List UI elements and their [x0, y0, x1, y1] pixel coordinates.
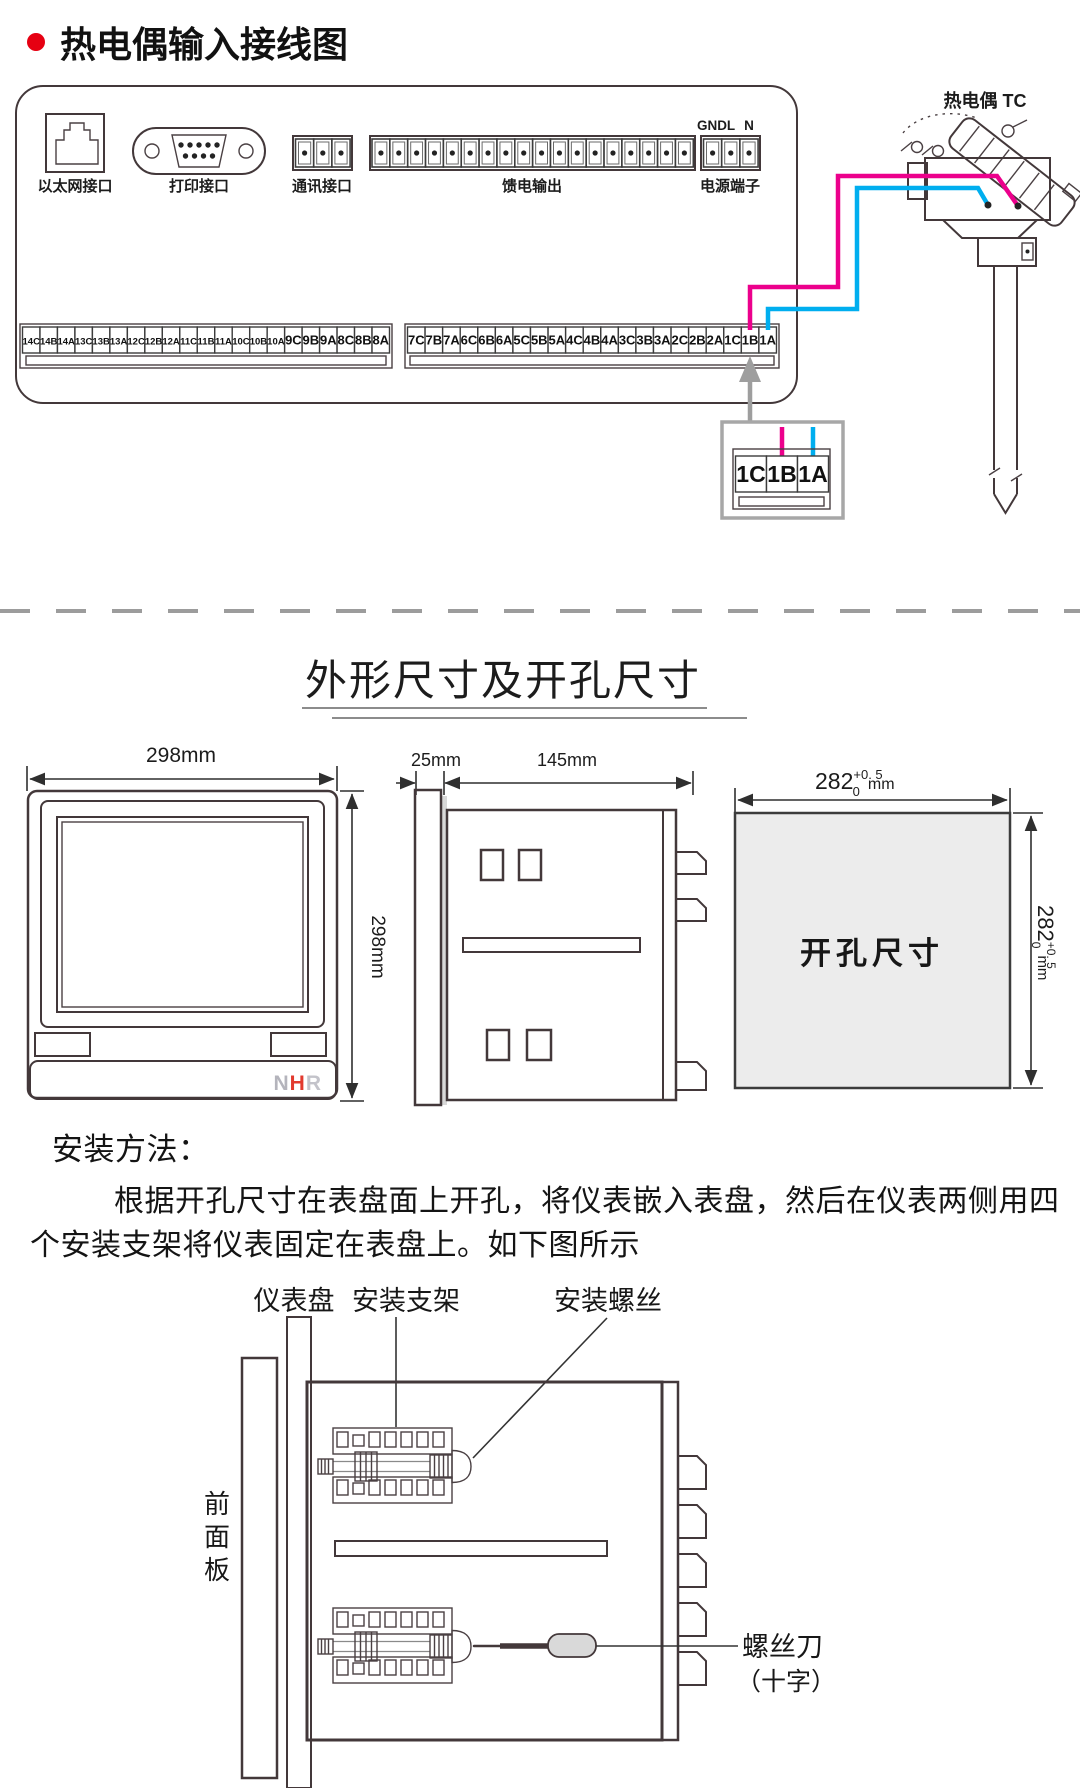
terminal-label: 9B — [303, 333, 320, 348]
dotted-cable-arc — [903, 114, 977, 133]
connector-pin-dot — [302, 150, 307, 155]
connector-pin-dot — [610, 150, 615, 155]
connector-pin-dot — [646, 150, 651, 155]
terminal-label: 3B — [636, 333, 653, 348]
terminal-label: 13A — [110, 337, 128, 348]
connector-pin-dot — [450, 150, 455, 155]
front-panel-outline — [242, 1358, 277, 1778]
feed-output-cells — [372, 139, 693, 167]
body-depth-dim: 145mm — [537, 750, 597, 770]
bullet-icon — [26, 32, 46, 52]
connector-pin-dot — [664, 150, 669, 155]
front-height-dim: 298mm — [367, 915, 388, 978]
terminal-label: 7A — [443, 333, 460, 348]
side-clip-1 — [676, 852, 706, 874]
front-width-dim: 298mm — [146, 744, 216, 767]
svg-text:板: 板 — [204, 1556, 230, 1585]
power-pin-l: L — [727, 118, 735, 133]
body-slot — [335, 1541, 607, 1556]
side-view: 25mm 145mm — [396, 750, 706, 1105]
terminal-label: 2B — [689, 333, 706, 348]
terminal-label: 12C — [127, 337, 145, 348]
terminal-label: 14A — [57, 337, 75, 348]
terminal-label: 10A — [267, 337, 285, 348]
mounting-bracket-bottom — [318, 1608, 471, 1683]
cutout-view: 282+0. 50mm 开孔尺寸 282+0. 50mm — [735, 767, 1058, 1088]
terminal-label: 11A — [215, 337, 232, 348]
terminal-label: 7B — [426, 333, 443, 348]
terminal-label: 1C — [724, 333, 741, 348]
connector-pin-dot — [396, 150, 401, 155]
terminal-label: 2A — [707, 333, 724, 348]
terminal-label: 11B — [198, 337, 215, 348]
installation-diagram: 仪表盘 安装支架 安装螺丝 前 面 板 螺丝刀 （十字） — [0, 1270, 1080, 1788]
terminal-label: 4B — [584, 333, 601, 348]
power-pin-gnd: GND — [697, 118, 727, 133]
bracket-label: 安装支架 — [352, 1286, 460, 1316]
svg-text:面: 面 — [204, 1523, 230, 1552]
connector-pin-dot — [378, 150, 383, 155]
terminal-label: 1C — [736, 461, 765, 487]
screw-label: 安装螺丝 — [554, 1286, 662, 1316]
rear-clip-2 — [678, 1505, 706, 1538]
rear-clip-3 — [678, 1554, 706, 1587]
terminal-label: 10B — [250, 337, 268, 348]
connector-pin-dot — [503, 150, 508, 155]
front-panel-label: 前 面 板 — [204, 1490, 230, 1585]
terminal-label: 9A — [320, 333, 337, 348]
connector-pin-dot — [557, 150, 562, 155]
section-title: 外形尺寸及开孔尺寸 — [305, 657, 701, 704]
connector-pin-dot — [414, 150, 419, 155]
screwdriver-sublabel: （十字） — [736, 1668, 836, 1696]
terminal-label: 7C — [408, 333, 425, 348]
terminal-label: 5B — [531, 333, 548, 348]
terminal-label: 9C — [285, 333, 302, 348]
rear-clip-5 — [678, 1652, 706, 1685]
ethernet-port-label: 以太网接口 — [37, 177, 112, 195]
install-paragraph-line1: 根据开孔尺寸在表盘面上开孔，将仪表嵌入表盘，然后在仪表两侧用四 — [114, 1176, 1060, 1220]
terminal-label: 8A — [372, 333, 389, 348]
section-divider — [0, 609, 1080, 613]
terminal-strip-left: 14C14B14A13C13B13A12C12B12A11C11B11A10C1… — [20, 324, 392, 368]
terminal-label: 6A — [496, 333, 513, 348]
terminal-zoom-arrow — [739, 356, 761, 424]
terminal-label: 12A — [162, 337, 180, 348]
terminal-strip-right: 7C7B7A6C6B6A5C5B5A4C4B4A3C3B3A2C2B2A1C1B… — [405, 324, 779, 368]
mounting-bracket-top — [318, 1428, 471, 1503]
connector-pin-dot — [728, 150, 733, 155]
thermocouple-label: 热电偶 TC — [944, 90, 1027, 111]
feed-output-label: 馈电输出 — [501, 177, 562, 195]
cutout-width-dim: 282+0. 50mm — [815, 767, 895, 799]
screwdriver-label: 螺丝刀 — [742, 1632, 823, 1662]
terminal-label: 14C — [23, 337, 41, 348]
connector-pin-dot — [539, 150, 544, 155]
terminal-label: 13C — [75, 337, 93, 348]
terminal-label: 1B — [767, 461, 796, 487]
power-pin-n: N — [744, 118, 754, 133]
tc-negative-wire — [768, 188, 988, 330]
terminal-label: 5C — [513, 333, 530, 348]
screwdriver-icon — [474, 1634, 596, 1657]
svg-text:前: 前 — [204, 1490, 230, 1519]
connector-pin-dot — [432, 150, 437, 155]
printer-port-icon — [133, 128, 265, 174]
terminal-label: 3C — [619, 333, 636, 348]
terminal-label: 13B — [92, 337, 110, 348]
printer-port-label: 打印接口 — [169, 177, 229, 195]
connector-pin-dot — [746, 150, 751, 155]
connector-pin-dot — [468, 150, 473, 155]
connector-pin-dot — [710, 150, 715, 155]
connector-pin-dot — [593, 150, 598, 155]
terminal-label: 1A — [798, 461, 827, 487]
cutout-area-label: 开孔尺寸 — [800, 936, 944, 971]
install-paragraph-line2: 个安装支架将仪表固定在表盘上。如下图所示 — [30, 1220, 640, 1264]
connector-pin-dot — [485, 150, 490, 155]
front-view: 298mm NHR 298mm — [27, 744, 388, 1101]
terminal-label: 6B — [478, 333, 495, 348]
wiring-diagram: 以太网接口 打印接口 通讯接口 馈电输出 GND L N 电源端子 14C14B… — [0, 60, 1080, 620]
screw-leader-line — [473, 1318, 607, 1458]
rear-clip-4 — [678, 1603, 706, 1636]
terminal-label: 3A — [654, 333, 671, 348]
bezel-depth-dim: 25mm — [411, 750, 461, 770]
connector-pin-dot — [338, 150, 343, 155]
terminal-label: 1B — [742, 333, 759, 348]
ethernet-port-icon — [46, 114, 104, 172]
connector-pin-dot — [575, 150, 580, 155]
brand-logo: NHR — [273, 1072, 322, 1095]
svg-text:282+0. 50mm: 282+0. 50mm — [1029, 905, 1058, 980]
meter-body — [307, 1382, 706, 1740]
connector-pin-dot — [628, 150, 633, 155]
terminal-label: 4C — [566, 333, 583, 348]
terminal-label: 5A — [549, 333, 566, 348]
power-terminal-cells — [704, 139, 759, 167]
install-heading: 安装方法： — [52, 1124, 210, 1169]
terminal-label: 8B — [355, 333, 372, 348]
comm-port-label: 通讯接口 — [292, 177, 352, 195]
connector-pin-dot — [320, 150, 325, 155]
terminal-label: 6C — [461, 333, 478, 348]
terminal-label: 8C — [337, 333, 354, 348]
terminal-label: 10C — [232, 337, 250, 348]
comm-port-cells — [296, 139, 351, 167]
side-clip-3 — [676, 1062, 706, 1090]
tc-probe-tip — [994, 494, 1017, 513]
rear-clip-1 — [678, 1456, 706, 1489]
terminal-label: 2C — [672, 333, 689, 348]
side-clip-2 — [676, 899, 706, 921]
connector-pin-dot — [682, 150, 687, 155]
cutout-height-dim: 282+0. 50mm — [1029, 905, 1058, 980]
power-terminal-label: 电源端子 — [700, 177, 760, 195]
terminal-label: 12B — [145, 337, 163, 348]
terminal-label: 1A — [759, 333, 776, 348]
panel-label: 仪表盘 — [254, 1286, 335, 1316]
terminal-label: 11C — [180, 337, 197, 348]
thermocouple-illustration: 热电偶 TC — [901, 90, 1080, 513]
terminal-label: 14B — [40, 337, 58, 348]
terminal-label: 4A — [601, 333, 618, 348]
connector-pin-dot — [521, 150, 526, 155]
dimension-diagram: 外形尺寸及开孔尺寸 298mm NHR 298mm 25mm 145mm — [0, 628, 1080, 1114]
terminal-callout-box: 1C1B1A — [722, 422, 843, 518]
